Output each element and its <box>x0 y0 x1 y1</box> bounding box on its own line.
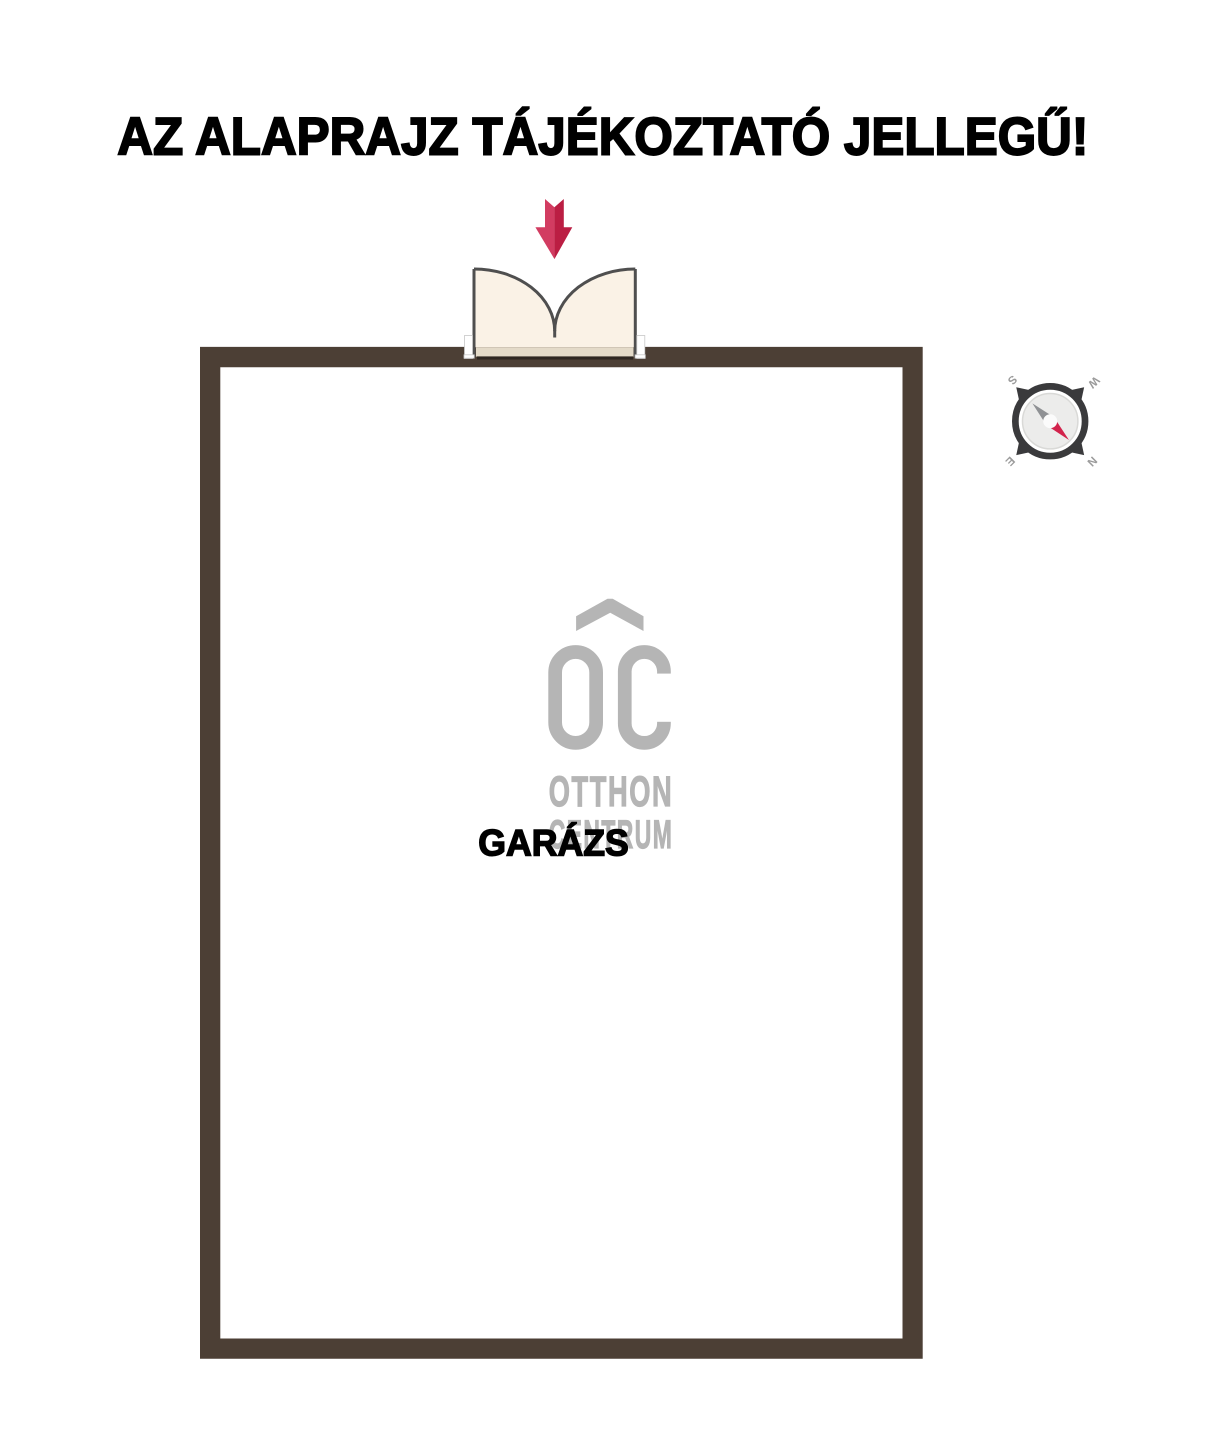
svg-text:GARÁZS: GARÁZS <box>478 823 629 864</box>
svg-text:AZ ALAPRAJZ TÁJÉKOZTATÓ JELLEG: AZ ALAPRAJZ TÁJÉKOZTATÓ JELLEGŰ! <box>117 107 1088 167</box>
svg-text:OTTHON: OTTHON <box>549 768 674 816</box>
